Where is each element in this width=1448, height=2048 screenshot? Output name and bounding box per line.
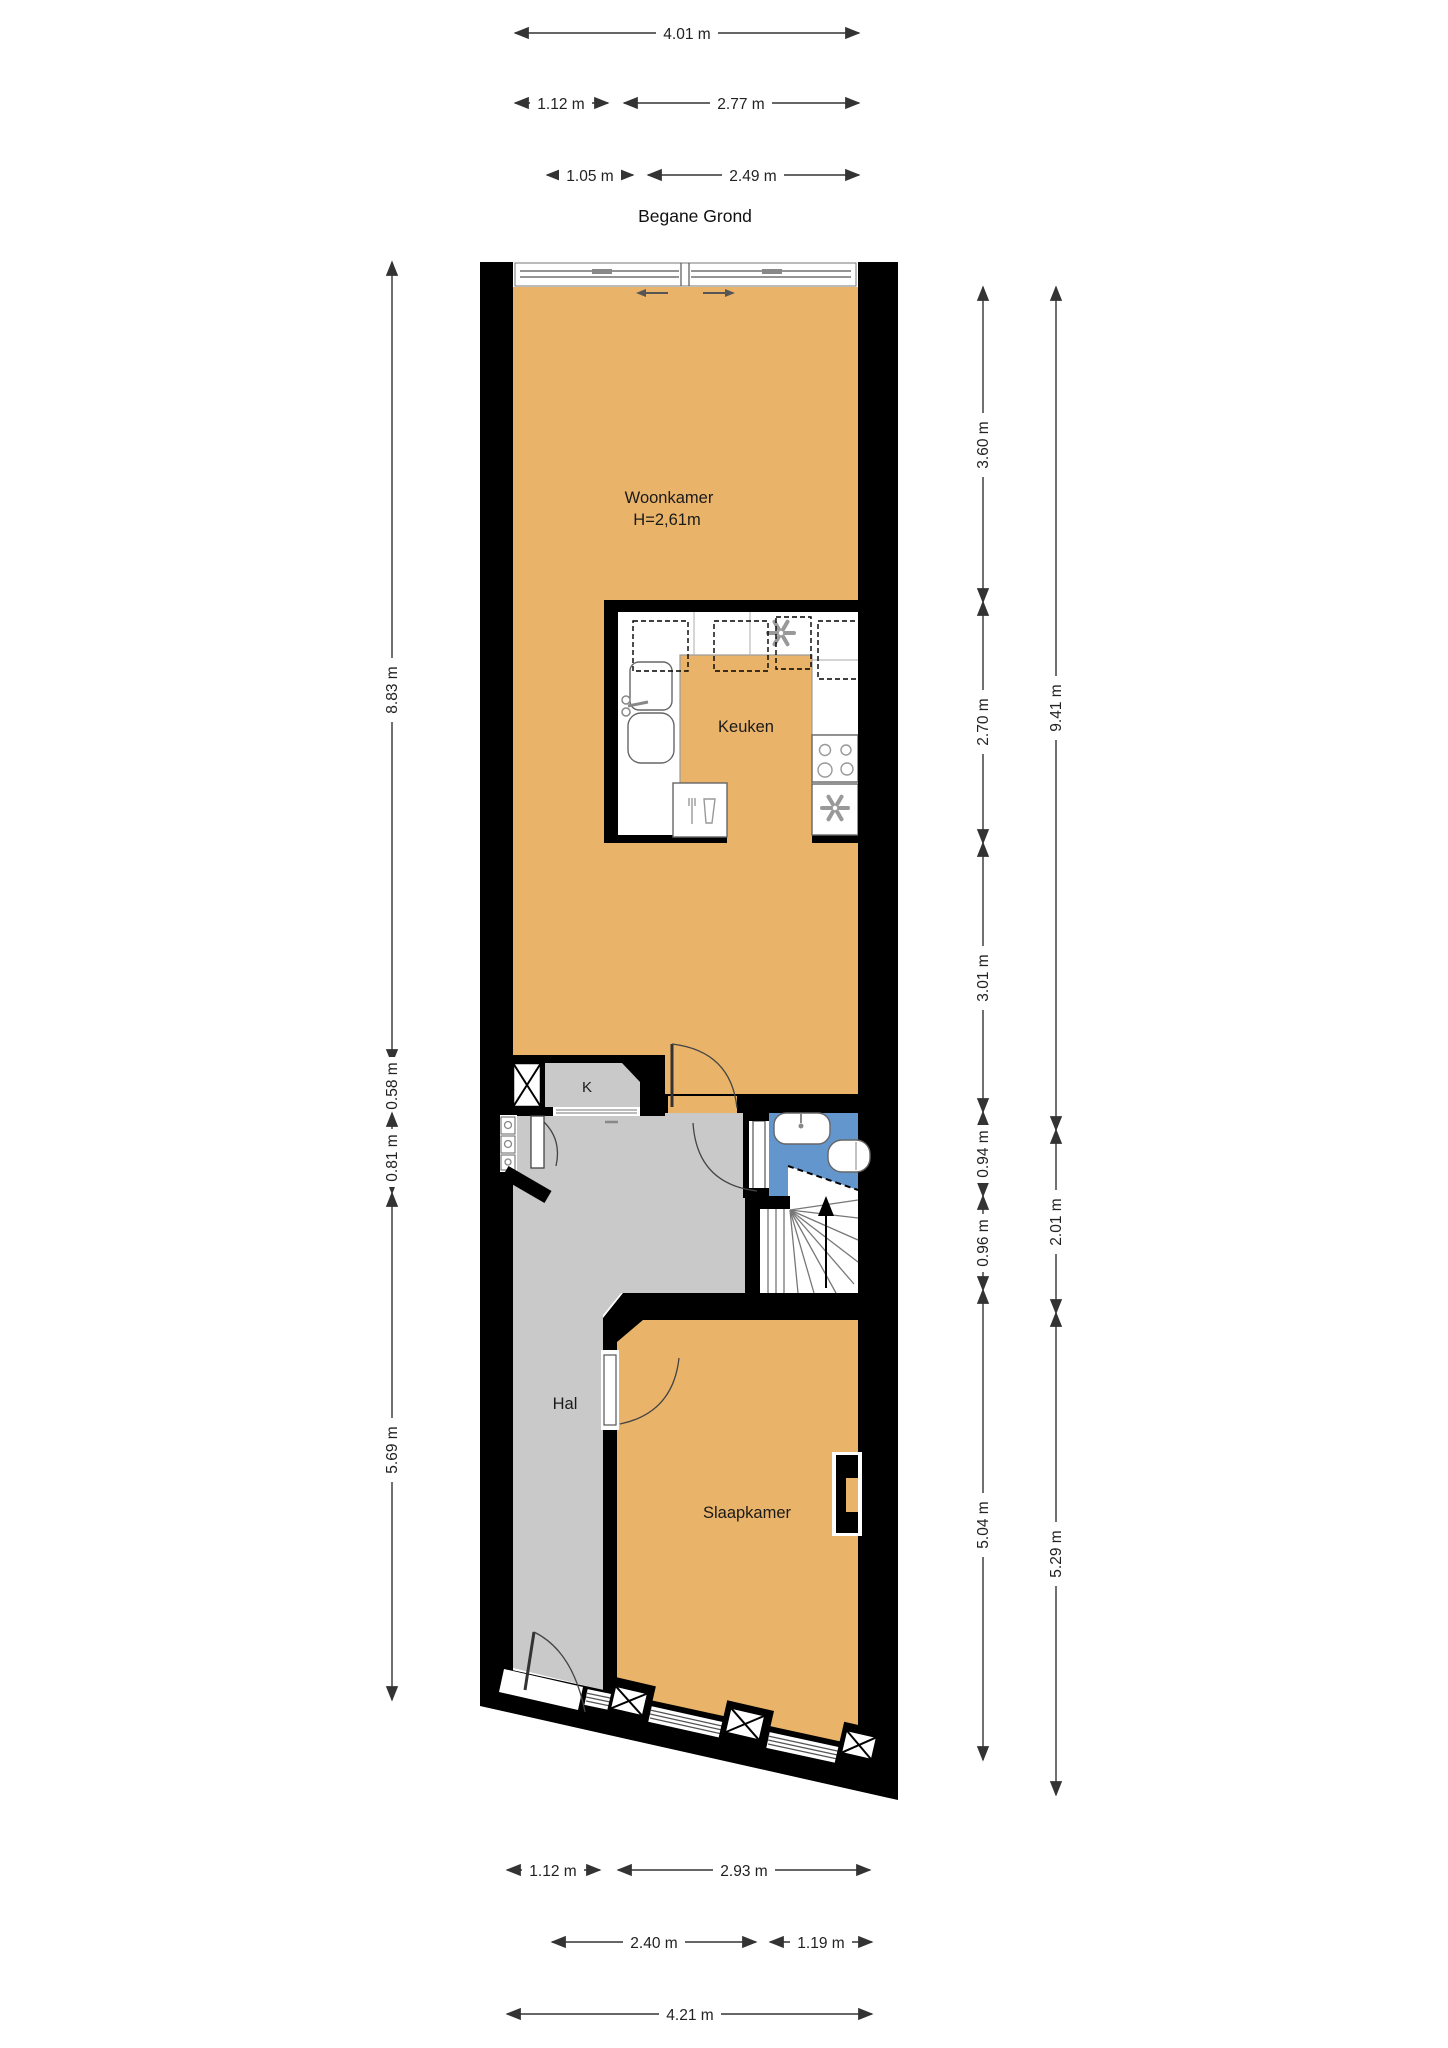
- svg-text:2.70 m: 2.70 m: [975, 698, 992, 745]
- flue-hatch-icon: [513, 1063, 541, 1107]
- dim-top-row2-right: 2.77 m: [624, 94, 859, 113]
- room-label-slaapkamer: Slaapkamer: [703, 1504, 792, 1522]
- svg-text:5.69 m: 5.69 m: [384, 1426, 401, 1473]
- room-label-woonkamer: Woonkamer: [625, 489, 714, 507]
- svg-text:4.21 m: 4.21 m: [666, 2007, 713, 2024]
- room-badkamer: [766, 1113, 870, 1198]
- dim-left-woonkamer: 8.83 m: [383, 262, 402, 1063]
- wall-left: [480, 262, 513, 1672]
- dim-top-row2-left: 1.12 m: [515, 94, 608, 113]
- floorplan-page: Begane Grond Woonkamer H=2,61m: [0, 0, 1448, 2048]
- svg-text:1.05 m: 1.05 m: [566, 168, 613, 185]
- dim-bottom-total: 4.21 m: [507, 2005, 872, 2024]
- chimney-breast: [832, 1452, 862, 1536]
- dim-left-hal: 5.69 m: [383, 1193, 402, 1700]
- svg-text:9.41 m: 9.41 m: [1048, 684, 1065, 731]
- closet-kast: K: [505, 1055, 665, 1122]
- dim-bottom-row2-right: 1.19 m: [770, 1933, 872, 1952]
- room-label-keuken: Keuken: [718, 718, 774, 736]
- svg-text:3.60 m: 3.60 m: [975, 421, 992, 468]
- dim-right-keuken: 2.70 m: [974, 602, 993, 843]
- dim-left-entree: 0.81 m: [383, 1113, 402, 1193]
- meter-fixtures-icon: [501, 1117, 515, 1170]
- stove-icon: [812, 735, 858, 782]
- floorplan-canvas: Begane Grond Woonkamer H=2,61m: [0, 0, 1448, 2048]
- room-label-kast: K: [582, 1079, 592, 1096]
- dim-right-badkamer: 0.94 m: [974, 1112, 993, 1196]
- front-window-top: [513, 261, 858, 288]
- svg-text:3.01 m: 3.01 m: [975, 954, 992, 1001]
- svg-text:0.94 m: 0.94 m: [975, 1130, 992, 1177]
- wall-right: [858, 262, 898, 1767]
- svg-text:0.96 m: 0.96 m: [975, 1219, 992, 1266]
- svg-text:5.04 m: 5.04 m: [975, 1501, 992, 1548]
- dim-right-outer-bottom: 5.29 m: [1047, 1313, 1066, 1795]
- staircase: [745, 1196, 858, 1296]
- svg-text:2.01 m: 2.01 m: [1048, 1198, 1065, 1245]
- svg-text:8.83 m: 8.83 m: [384, 666, 401, 713]
- dim-right-outer-mid: 2.01 m: [1047, 1130, 1066, 1313]
- bathroom-sink-icon: [774, 1113, 830, 1144]
- dim-left-kast: 0.58 m: [383, 1057, 402, 1115]
- dim-top-total: 4.01 m: [515, 24, 859, 43]
- dim-bottom-row1-right: 2.93 m: [618, 1861, 870, 1880]
- svg-text:5.29 m: 5.29 m: [1048, 1530, 1065, 1577]
- plan-title: Begane Grond: [638, 206, 752, 226]
- dim-right-slaapkamer: 5.04 m: [974, 1290, 993, 1760]
- svg-text:0.58 m: 0.58 m: [384, 1062, 401, 1109]
- dim-right-woonkamer-top: 3.60 m: [974, 287, 993, 602]
- svg-text:2.49 m: 2.49 m: [729, 168, 776, 185]
- room-label-hal: Hal: [553, 1395, 578, 1413]
- dim-top-row3-left: 1.05 m: [547, 166, 633, 185]
- svg-text:2.40 m: 2.40 m: [630, 1935, 677, 1952]
- svg-text:1.19 m: 1.19 m: [797, 1935, 844, 1952]
- room-label-woonkamer-height: H=2,61m: [633, 511, 700, 529]
- svg-text:1.12 m: 1.12 m: [529, 1863, 576, 1880]
- dim-bottom-row2-left: 2.40 m: [552, 1933, 756, 1952]
- dim-right-outer-top: 9.41 m: [1047, 287, 1066, 1130]
- dim-bottom-row1-left: 1.12 m: [507, 1861, 600, 1880]
- room-keuken: Keuken: [604, 600, 866, 850]
- svg-text:1.12 m: 1.12 m: [537, 96, 584, 113]
- toilet-icon: [828, 1140, 870, 1172]
- dim-right-woonkamer-bottom: 3.01 m: [974, 843, 993, 1112]
- dishwasher-icon: [673, 783, 727, 837]
- svg-text:4.01 m: 4.01 m: [663, 26, 710, 43]
- vent-fan-icon: [812, 784, 858, 835]
- dim-top-row3-right: 2.49 m: [648, 166, 859, 185]
- dim-right-trap: 0.96 m: [974, 1196, 993, 1290]
- svg-text:2.93 m: 2.93 m: [720, 1863, 767, 1880]
- svg-text:0.81 m: 0.81 m: [384, 1134, 401, 1181]
- svg-text:2.77 m: 2.77 m: [717, 96, 764, 113]
